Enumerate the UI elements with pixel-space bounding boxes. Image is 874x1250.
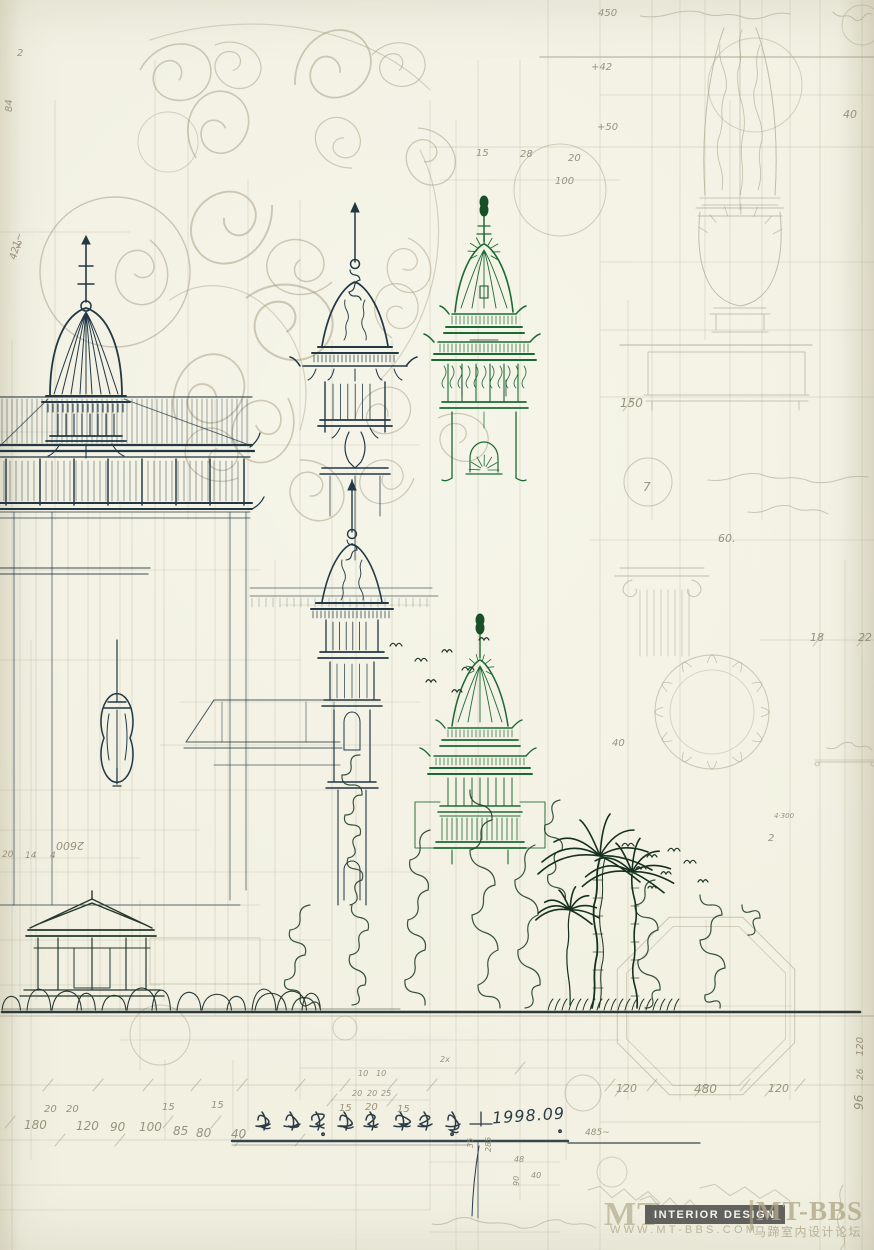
- dim-label: 15: [162, 1102, 175, 1113]
- ornamental-scroll-pattern: [111, 18, 497, 531]
- pencil-construction-grid: [0, 0, 874, 1250]
- dim-label: +42: [591, 62, 612, 73]
- dim-label: 40: [531, 1171, 541, 1180]
- dim-label: 15: [397, 1104, 410, 1115]
- dim-label: 2: [17, 48, 23, 59]
- architectural-sketch-canvas: [0, 0, 874, 1250]
- dim-label: 90: [110, 1120, 125, 1134]
- dim-label: 20: [568, 153, 581, 164]
- dim-label: 2600: [56, 839, 84, 852]
- dim-label: 28: [520, 149, 533, 160]
- dim-label: 100: [555, 176, 574, 187]
- dim-label: 48: [514, 1155, 524, 1164]
- dim-label: 40: [612, 738, 625, 749]
- dim-label: 485~: [585, 1128, 610, 1138]
- dim-label: +50: [597, 122, 618, 133]
- dim-label: 20: [2, 850, 13, 860]
- dim-label: 14: [25, 851, 36, 861]
- dim-label: 84: [4, 99, 15, 112]
- hand-lettered-title-strokes: [232, 1112, 700, 1216]
- dim-label: 120: [855, 1037, 866, 1056]
- dim-label: 60.: [718, 532, 736, 545]
- dim-label: 40: [843, 108, 857, 121]
- dim-label: 80: [196, 1126, 211, 1140]
- dim-label: 20: [66, 1104, 79, 1115]
- dim-label: 285: [484, 1137, 493, 1152]
- dim-label: 4·300: [774, 812, 794, 820]
- dim-label: 20: [367, 1089, 377, 1098]
- dim-label: 26: [856, 1069, 866, 1080]
- dim-label: 100: [139, 1120, 162, 1134]
- dim-label: 480: [694, 1082, 717, 1096]
- dim-label: 15: [339, 1103, 352, 1114]
- dim-label: 90: [512, 1176, 521, 1186]
- dim-label: 150: [620, 396, 643, 410]
- dim-label: 2: [768, 833, 774, 844]
- dim-label: 2x: [440, 1055, 450, 1064]
- dim-label: 96: [852, 1095, 866, 1110]
- dim-label: 20: [352, 1089, 362, 1098]
- dim-label: 180: [24, 1118, 47, 1132]
- dim-label: 10: [376, 1069, 386, 1078]
- dim-label: 18: [810, 631, 824, 644]
- dim-label: 35: [466, 1138, 475, 1148]
- dim-label: 120: [768, 1082, 789, 1095]
- dim-label: 40: [231, 1127, 246, 1141]
- dim-label: 22: [858, 631, 872, 644]
- dim-label: 15: [211, 1100, 224, 1111]
- dim-label: 85: [173, 1124, 188, 1138]
- dim-label: 4: [50, 851, 56, 861]
- dim-label: 7: [643, 480, 651, 494]
- dim-label: 20: [365, 1102, 378, 1113]
- dim-label: 25: [381, 1089, 391, 1098]
- dim-label: 15: [476, 148, 489, 159]
- dim-label: 10: [358, 1069, 368, 1078]
- dim-label: 20: [44, 1104, 57, 1115]
- dim-label: 450: [598, 8, 617, 19]
- dim-label: 120: [76, 1119, 99, 1133]
- sketch-paper: 450+42+50401528201002842421~150760.18224…: [0, 0, 874, 1250]
- dim-label: 120: [616, 1082, 637, 1095]
- pencil-studies: [150, 0, 874, 1250]
